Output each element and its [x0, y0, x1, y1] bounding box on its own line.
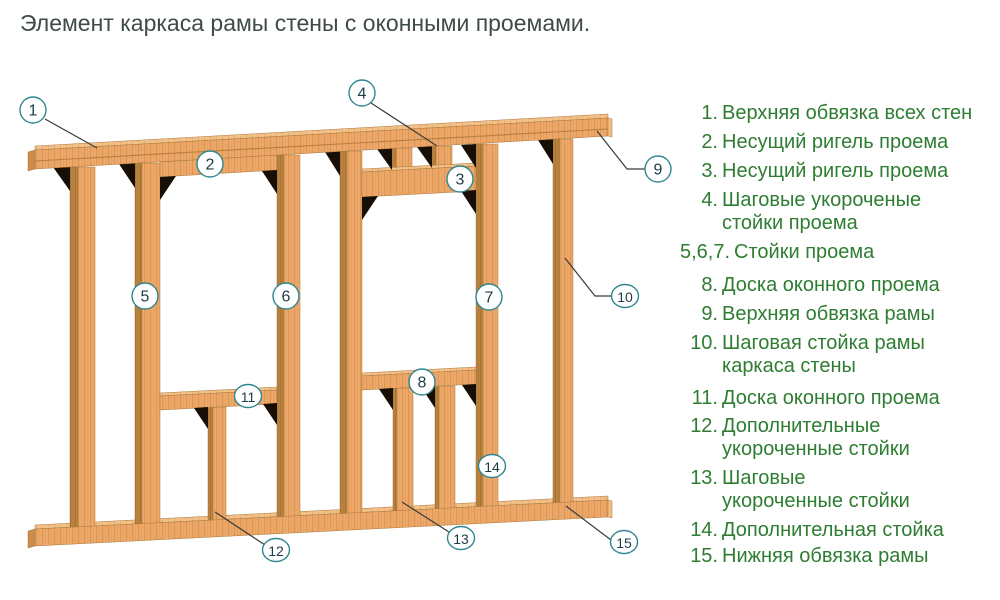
legend-item-label: Верхняя обвязка рамы	[722, 303, 935, 326]
callout-number-6: 6	[282, 289, 291, 306]
callout-number-4: 4	[358, 86, 367, 103]
callout-10: 10	[612, 285, 639, 308]
top-plate-right-end	[608, 118, 612, 137]
legend-item-number: 9.	[680, 303, 722, 326]
callout-5: 5	[132, 283, 158, 309]
legend-item-label: Дополнительная стойка	[722, 519, 944, 542]
callout-number-12: 12	[268, 543, 284, 559]
legend-item-5-6-7-: 5,6,7.Стойки проема	[680, 241, 874, 264]
callout-number-9: 9	[654, 162, 663, 179]
legend-item-number: 11.	[680, 387, 722, 410]
legend-item-8-: 8.Доска оконного проема	[680, 274, 940, 297]
legend-item-11-: 11.Доска оконного проема	[680, 387, 940, 410]
stud-right-outer	[553, 139, 560, 509]
cripple-studs-below-sill1	[208, 407, 226, 526]
legend-item-number: 12.	[680, 415, 722, 438]
legend-item-label: Доска оконного проема	[722, 387, 940, 410]
legend-item-number: 5,6,7.	[680, 241, 734, 264]
stud-left-outer	[70, 167, 78, 533]
callout-number-2: 2	[206, 157, 215, 174]
callout-number-5: 5	[141, 289, 150, 306]
callout-4: 4	[349, 80, 375, 106]
callout-3: 3	[447, 166, 473, 192]
callout-12: 12	[263, 539, 290, 562]
legend-item-14-: 14.Дополнительная стойка	[680, 519, 944, 542]
callout-number-10: 10	[617, 289, 633, 305]
legend-item-10-: 10.Шаговая стойка рамыкаркаса стены	[680, 332, 925, 378]
callout-6: 6	[273, 283, 299, 309]
callout-14: 14	[479, 455, 506, 478]
callout-2: 2	[197, 151, 223, 177]
legend-item-label: Нижняя обвязка рамы	[722, 545, 928, 568]
cripple-studs-below-sill2	[393, 386, 455, 517]
stud-window1-left	[142, 163, 160, 530]
callout-number-14: 14	[484, 459, 500, 475]
legend-item-label: Несущий ригель проема	[722, 160, 948, 183]
stud-window1-right	[277, 155, 284, 523]
legend-item-12-: 12.Дополнительныеукороченные стойки	[680, 415, 910, 461]
legend-list: 1.Верхняя обвязка всех стен2.Несущий риг…	[680, 0, 998, 600]
legend-item-number: 2.	[680, 131, 722, 154]
callout-number-15: 15	[616, 535, 632, 551]
stud-window2-left	[347, 151, 362, 520]
top-plate	[28, 114, 612, 171]
legend-item-number: 13.	[680, 467, 722, 490]
legend-item-3-: 3.Несущий ригель проема	[680, 160, 948, 183]
bottom-plate-left-end	[28, 529, 35, 548]
top-plate-left-end	[28, 150, 35, 171]
legend-item-label: Верхняя обвязка всех стен	[722, 102, 972, 125]
callout-13: 13	[448, 527, 475, 550]
legend-item-label: Шаговые укороченыестойки проема	[722, 189, 921, 235]
callout-number-3: 3	[456, 172, 465, 189]
callout-number-11: 11	[241, 389, 256, 405]
legend-item-label: Шаговыеукороченные стойки	[722, 467, 910, 513]
stud-left-outer	[78, 167, 95, 533]
callout-number-1: 1	[29, 103, 38, 120]
bottom-plate-right-end	[608, 500, 612, 518]
legend-item-label: Дополнительныеукороченные стойки	[722, 415, 910, 461]
callout-number-8: 8	[418, 375, 427, 392]
stud-right-outer	[560, 139, 573, 509]
stud-window2-left	[340, 151, 347, 520]
legend-item-number: 8.	[680, 274, 722, 297]
callout-9: 9	[645, 156, 671, 182]
legend-item-number: 14.	[680, 519, 722, 542]
legend-item-number: 4.	[680, 189, 722, 212]
callout-11: 11	[235, 385, 262, 408]
legend-item-number: 15.	[680, 545, 722, 568]
legend-item-4-: 4.Шаговые укороченыестойки проема	[680, 189, 921, 235]
leader-9	[597, 131, 645, 169]
legend-item-number: 3.	[680, 160, 722, 183]
legend-item-label: Несущий ригель проема	[722, 131, 948, 154]
legend-item-number: 1.	[680, 102, 722, 125]
legend-item-label: Шаговая стойка рамыкаркаса стены	[722, 332, 925, 378]
callout-number-13: 13	[453, 531, 469, 547]
legend-item-9-: 9.Верхняя обвязка рамы	[680, 303, 935, 326]
stud-window1-left	[135, 163, 142, 530]
callout-15: 15	[611, 531, 638, 554]
legend-item-label: Доска оконного проема	[722, 274, 940, 297]
legend-item-15-: 15.Нижняя обвязка рамы	[680, 545, 928, 568]
legend-item-1-: 1.Верхняя обвязка всех стен	[680, 102, 972, 125]
legend-item-label: Стойки проема	[734, 241, 874, 264]
wall-frame-diagram-page: Элемент каркаса рамы стены с оконными пр…	[0, 0, 1000, 600]
callout-number-7: 7	[485, 290, 494, 307]
legend-item-number: 10.	[680, 332, 722, 355]
legend-item-2-: 2.Несущий ригель проема	[680, 131, 948, 154]
callout-1: 1	[20, 97, 46, 123]
callout-8: 8	[409, 369, 435, 395]
legend-item-13-: 13.Шаговыеукороченные стойки	[680, 467, 910, 513]
stud-window1-right	[284, 155, 300, 523]
callout-7: 7	[476, 284, 502, 310]
leader-1	[45, 119, 97, 148]
